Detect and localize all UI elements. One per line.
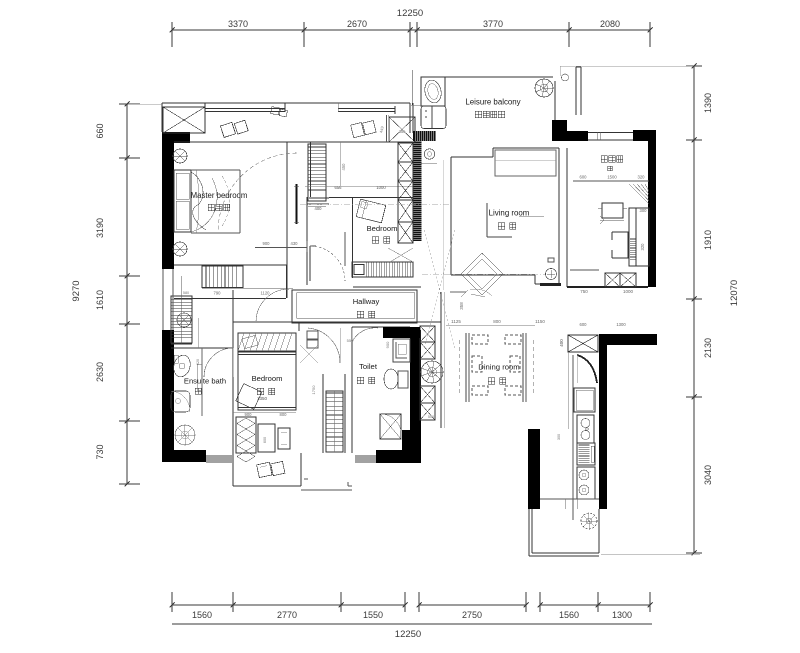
svg-text:350: 350	[399, 129, 406, 134]
svg-text:Bedroom: Bedroom	[252, 374, 283, 383]
svg-text:400: 400	[559, 339, 564, 347]
svg-text:600: 600	[580, 175, 588, 180]
svg-text:1300: 1300	[612, 610, 632, 620]
svg-text:660: 660	[95, 123, 105, 138]
svg-text:3040: 3040	[703, 465, 713, 485]
svg-text:2770: 2770	[277, 610, 297, 620]
svg-text:2670: 2670	[347, 19, 367, 29]
svg-text:1150: 1150	[535, 319, 545, 324]
svg-text:1550: 1550	[363, 610, 383, 620]
svg-text:2080: 2080	[600, 19, 620, 29]
svg-text:900: 900	[245, 412, 253, 417]
svg-text:12070: 12070	[729, 280, 740, 306]
svg-text:1750: 1750	[311, 385, 316, 395]
svg-text:600: 600	[263, 437, 267, 443]
svg-text:450: 450	[341, 163, 346, 171]
svg-text:3770: 3770	[483, 19, 503, 29]
svg-text:Ensuite bath: Ensuite bath	[184, 377, 226, 386]
svg-text:750: 750	[580, 289, 588, 294]
svg-text:1300: 1300	[616, 322, 626, 327]
svg-text:620: 620	[196, 359, 200, 365]
svg-text:500: 500	[428, 415, 434, 419]
svg-text:Leisure balcony: Leisure balcony	[465, 98, 520, 107]
svg-text:730: 730	[95, 444, 105, 459]
svg-text:Bedroom: Bedroom	[367, 224, 398, 233]
svg-text:Toilet: Toilet	[359, 362, 378, 371]
svg-text:900: 900	[263, 241, 271, 246]
svg-text:2630: 2630	[95, 362, 105, 382]
svg-text:1390: 1390	[703, 93, 713, 113]
svg-text:9270: 9270	[71, 280, 82, 301]
svg-text:320: 320	[638, 175, 646, 180]
svg-text:1910: 1910	[703, 230, 713, 250]
svg-text:430: 430	[291, 241, 299, 246]
svg-text:3190: 3190	[95, 218, 105, 238]
svg-text:Dining room: Dining room	[478, 363, 519, 372]
svg-text:1125: 1125	[451, 319, 461, 324]
svg-text:1560: 1560	[559, 610, 579, 620]
svg-text:900: 900	[385, 341, 390, 348]
svg-text:12250: 12250	[397, 8, 423, 19]
svg-text:Hallway: Hallway	[353, 297, 380, 306]
svg-text:2750: 2750	[462, 610, 482, 620]
svg-text:3370: 3370	[228, 19, 248, 29]
svg-text:1500: 1500	[607, 175, 617, 180]
svg-text:550: 550	[347, 338, 354, 343]
svg-text:400: 400	[315, 206, 323, 211]
svg-text:800: 800	[280, 412, 288, 417]
svg-text:600: 600	[580, 322, 588, 327]
svg-text:358: 358	[459, 302, 464, 310]
svg-text:800: 800	[493, 319, 501, 324]
svg-text:1350: 1350	[257, 396, 268, 401]
svg-text:1120: 1120	[260, 291, 270, 296]
svg-text:320: 320	[640, 243, 645, 251]
svg-text:300: 300	[640, 208, 648, 213]
svg-text:2130: 2130	[703, 338, 713, 358]
svg-text:12250: 12250	[395, 629, 421, 640]
svg-text:790: 790	[214, 291, 222, 296]
svg-text:1000: 1000	[623, 289, 634, 294]
svg-text:1560: 1560	[192, 610, 212, 620]
svg-text:1610: 1610	[95, 290, 105, 310]
svg-text:300: 300	[557, 434, 561, 440]
svg-text:580: 580	[183, 291, 189, 295]
